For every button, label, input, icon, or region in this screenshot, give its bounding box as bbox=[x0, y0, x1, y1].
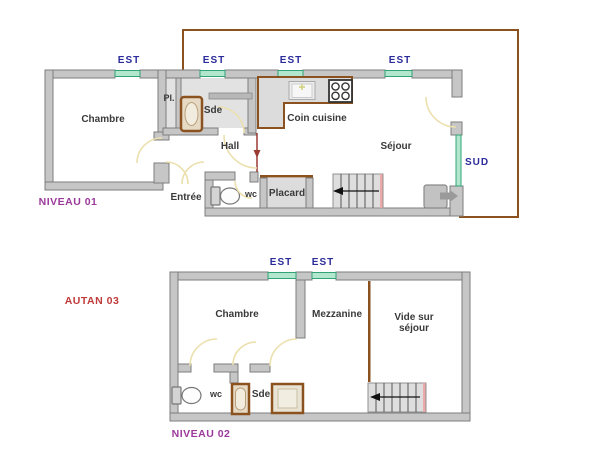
shower-icon bbox=[181, 97, 202, 131]
door-arc bbox=[190, 339, 217, 366]
room-label-placard: Placard bbox=[269, 189, 305, 200]
room-label-wc-n2: wc bbox=[210, 390, 222, 399]
stairs-icon-level2 bbox=[368, 383, 426, 412]
shower-icon-level2 bbox=[272, 384, 303, 413]
window-est-6 bbox=[312, 273, 336, 279]
door-arc bbox=[233, 342, 256, 365]
room-label-pl: Pl. bbox=[163, 94, 174, 103]
door-arc bbox=[270, 339, 297, 366]
toilet-icon-level2 bbox=[172, 387, 201, 404]
direction-label-est-2: EST bbox=[203, 56, 225, 67]
sink-icon bbox=[289, 82, 315, 100]
room-label-sejour: Séjour bbox=[380, 142, 411, 153]
door-arcs-level2 bbox=[190, 339, 297, 366]
direction-label-est-3: EST bbox=[280, 56, 302, 67]
toilet-icon bbox=[211, 187, 240, 205]
room-label-chambre-n2: Chambre bbox=[215, 310, 258, 321]
direction-label-est-4: EST bbox=[389, 56, 411, 67]
room-label-wc-n1: wc bbox=[245, 190, 257, 199]
stove-icon bbox=[329, 80, 352, 102]
stairs-icon-level1 bbox=[333, 174, 383, 208]
room-label-hall: Hall bbox=[221, 142, 239, 153]
window-sud bbox=[456, 135, 461, 186]
direction-label-est-5: EST bbox=[270, 258, 292, 269]
window-est-4 bbox=[385, 71, 412, 77]
placard-top-edge bbox=[260, 175, 313, 178]
mezzanine-edge-line bbox=[368, 281, 371, 382]
floor-plan-svg bbox=[0, 0, 600, 450]
direction-label-est-6: EST bbox=[312, 258, 334, 269]
direction-label-est-1: EST bbox=[118, 56, 140, 67]
room-label-mezzanine: Mezzanine bbox=[312, 310, 362, 321]
room-label-sde-n2: Sde bbox=[252, 390, 270, 401]
window-est-3 bbox=[278, 71, 303, 77]
window-est-2 bbox=[200, 71, 225, 77]
bathtub-icon bbox=[232, 384, 249, 414]
room-label-entree: Entrée bbox=[170, 193, 201, 204]
window-est-1 bbox=[115, 71, 140, 77]
door-arc bbox=[137, 138, 162, 163]
kitchen-boundary-arrow bbox=[254, 133, 261, 172]
room-label-sde-n1: Sde bbox=[204, 106, 222, 117]
room-label-coin-cuisine: Coin cuisine bbox=[287, 114, 346, 125]
direction-label-sud: SUD bbox=[465, 158, 489, 169]
floor-plan-page: EST EST EST EST SUD Chambre Pl. Sde Coin… bbox=[0, 0, 600, 450]
plan-reference-autan: AUTAN 03 bbox=[65, 296, 120, 307]
level-title-niveau-01: NIVEAU 01 bbox=[39, 197, 98, 208]
window-est-5 bbox=[268, 273, 296, 279]
level-title-niveau-02: NIVEAU 02 bbox=[172, 429, 231, 440]
door-arc bbox=[182, 162, 204, 184]
room-label-chambre-n1: Chambre bbox=[81, 115, 124, 126]
room-label-vide-sur-sejour: Vide sur séjour bbox=[382, 313, 446, 334]
vanity-shelf bbox=[209, 93, 252, 99]
